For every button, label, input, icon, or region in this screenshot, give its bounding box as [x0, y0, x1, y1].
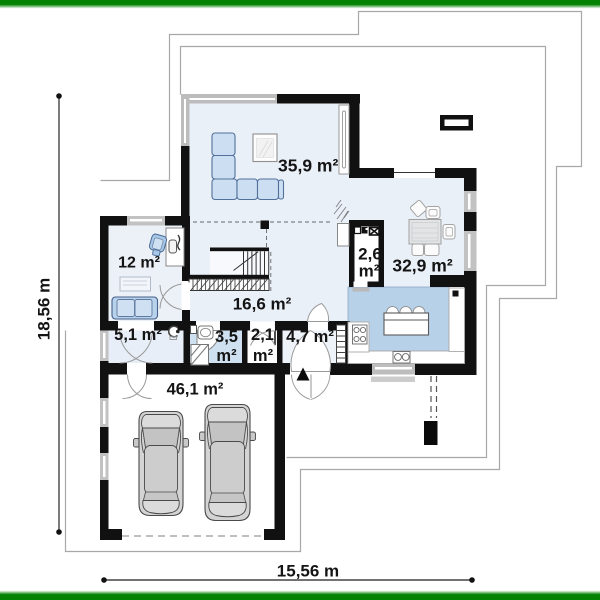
svg-text:16,6 m²: 16,6 m²	[233, 295, 292, 314]
svg-text:32,9 m²: 32,9 m²	[392, 256, 452, 276]
svg-text:3,5: 3,5	[215, 328, 238, 346]
svg-text:m²: m²	[253, 347, 274, 365]
svg-text:12 m²: 12 m²	[118, 255, 160, 272]
svg-text:35,9 m²: 35,9 m²	[278, 156, 338, 176]
svg-text:m²: m²	[359, 262, 380, 281]
svg-text:18,56 m: 18,56 m	[35, 278, 54, 340]
svg-text:2,1: 2,1	[251, 326, 274, 344]
svg-text:15,56 m: 15,56 m	[277, 562, 339, 581]
svg-text:5,1 m²: 5,1 m²	[114, 326, 162, 344]
svg-text:46,1 m²: 46,1 m²	[167, 381, 224, 399]
svg-text:4,7 m²: 4,7 m²	[286, 328, 334, 346]
svg-text:m²: m²	[216, 347, 237, 365]
